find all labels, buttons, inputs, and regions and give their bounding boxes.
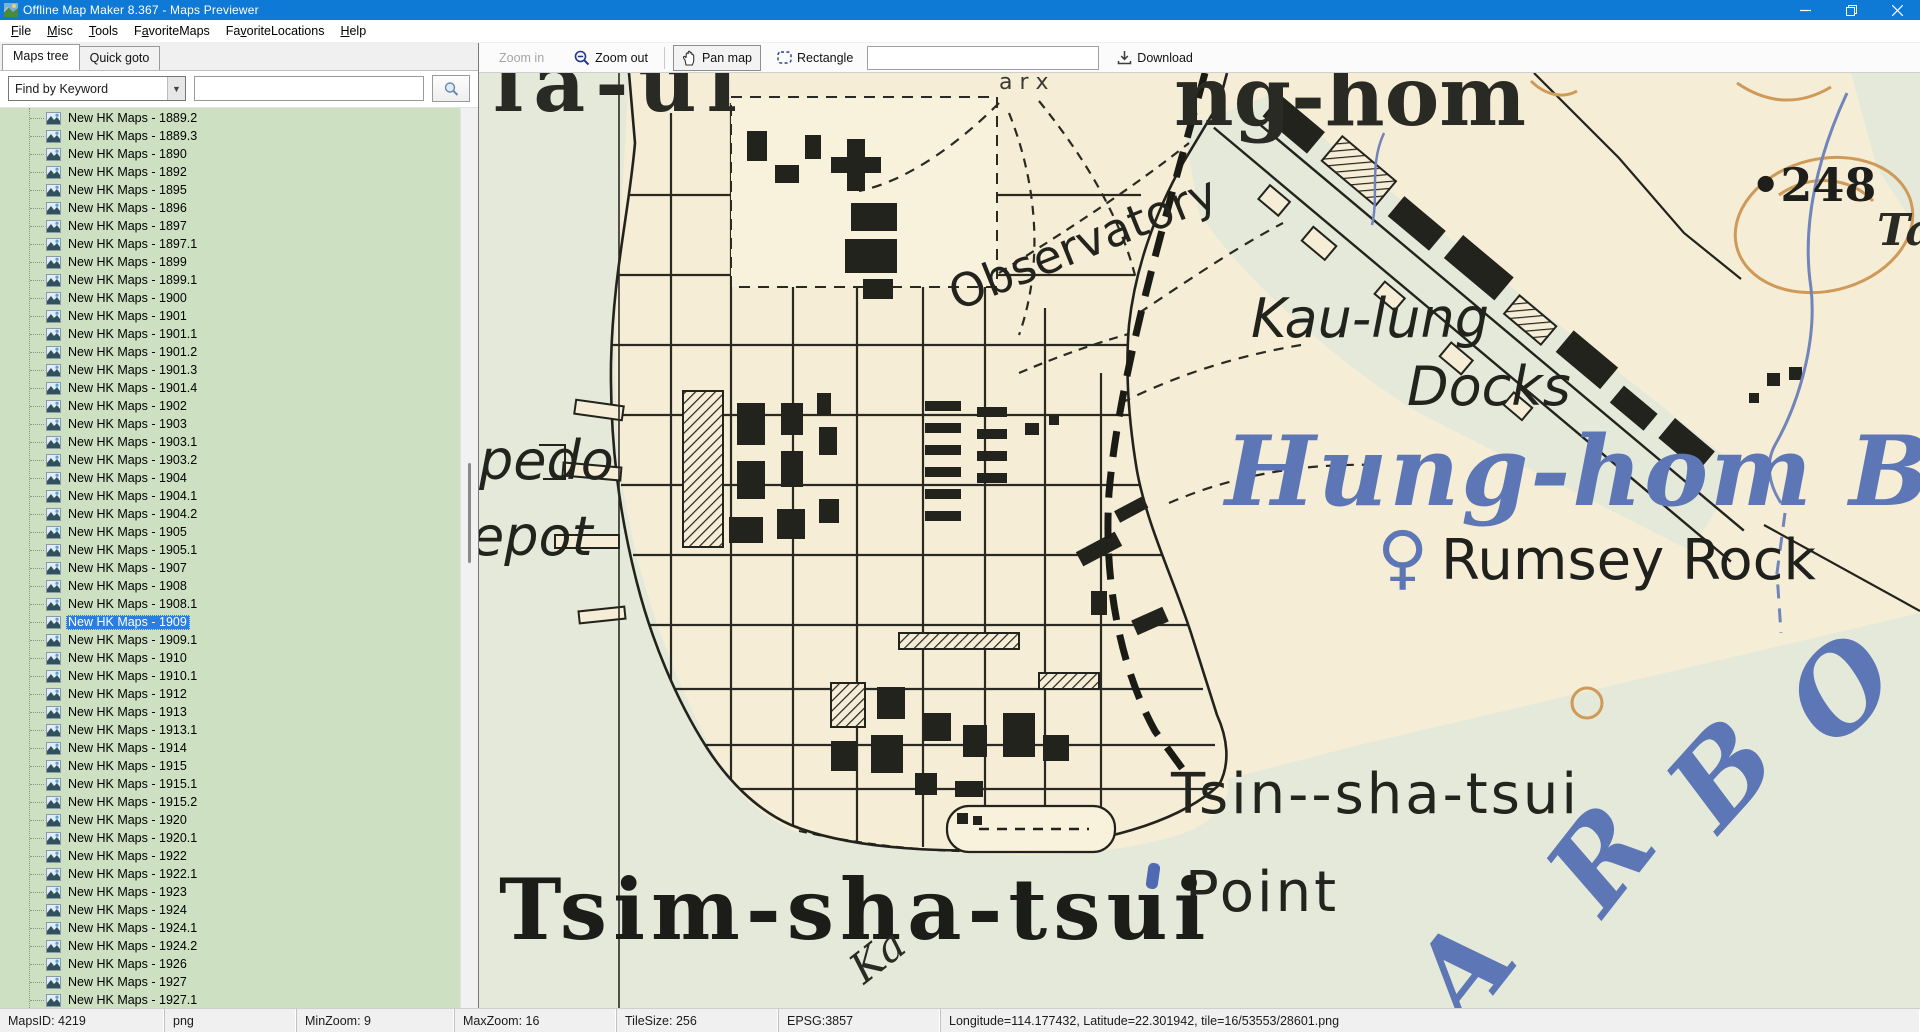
tree-connector (30, 820, 44, 821)
tree-connector (30, 982, 44, 983)
rectangle-select-icon (777, 51, 792, 64)
map-item-icon (46, 724, 61, 737)
map-item-icon (46, 436, 61, 449)
map-label-rumsey-rock: Rumsey Rock (1441, 528, 1816, 593)
map-item-icon (46, 562, 61, 575)
tree-item-label: New HK Maps - 1927 (66, 975, 190, 990)
map-item-icon (46, 400, 61, 413)
coordinate-input[interactable] (867, 46, 1099, 70)
tree-item[interactable]: New HK Maps - 1922.1 (0, 866, 460, 884)
tree-item[interactable]: New HK Maps - 1920 (0, 812, 460, 830)
map-item-icon (46, 508, 61, 521)
map-label-docks: Docks (1407, 355, 1571, 418)
tree-connector (30, 370, 44, 371)
tree-connector (30, 388, 44, 389)
map-label-sheet-title-right: ng-hom (1174, 73, 1526, 145)
tree-item-label: New HK Maps - 1915 (66, 759, 190, 774)
tree-item[interactable]: New HK Maps - 1889.2 (0, 110, 460, 128)
search-icon (443, 81, 459, 97)
tree-item-label: New HK Maps - 1912 (66, 687, 190, 702)
tree-connector (30, 856, 44, 857)
maps-tree: New HK Maps - 1889.2New HK Maps - 1889.3… (0, 108, 460, 1008)
tree-item-label: New HK Maps - 1889.2 (66, 111, 200, 126)
tree-connector (30, 424, 44, 425)
map-label-torpedo-depot-line2: epot (479, 505, 595, 568)
tree-connector (30, 694, 44, 695)
tree-connector (30, 226, 44, 227)
tree-connector (30, 838, 44, 839)
map-item-icon (46, 706, 61, 719)
rectangle-button[interactable]: Rectangle (769, 47, 861, 69)
tree-item[interactable]: New HK Maps - 1926 (0, 956, 460, 974)
map-pane: Zoom in Zoom out Pan map Rectangle (478, 43, 1920, 1008)
app-window: Offline Map Maker 8.367 - Maps Previewer… (0, 0, 1920, 1032)
map-item-icon (46, 742, 61, 755)
tab-maps-tree[interactable]: Maps tree (2, 44, 80, 70)
map-item-icon (46, 886, 61, 899)
tree-item-label: New HK Maps - 1920.1 (66, 831, 200, 846)
map-item-icon (46, 130, 61, 143)
map-label-kau-lung: Kau-lung (1251, 287, 1489, 350)
map-item-icon (46, 958, 61, 971)
tree-connector (30, 622, 44, 623)
tree-item-label: New HK Maps - 1901.4 (66, 381, 200, 396)
status-segment: MaxZoom: 16 (455, 1009, 617, 1032)
tree-item[interactable]: New HK Maps - 1901.2 (0, 344, 460, 362)
tree-item-label: New HK Maps - 1905.1 (66, 543, 200, 558)
map-item-icon (46, 868, 61, 881)
tree-scrollbar-thumb[interactable] (468, 463, 471, 563)
tree-item-label: New HK Maps - 1909 (66, 615, 190, 630)
map-label-height-248: •248 (1751, 158, 1876, 212)
map-item-icon (46, 346, 61, 359)
tree-item[interactable]: New HK Maps - 1907 (0, 560, 460, 578)
map-label-hung-hom-bay: Hung-hom Bay (1222, 415, 1920, 528)
tree-connector (30, 118, 44, 119)
tree-connector (30, 676, 44, 677)
tree-item[interactable]: New HK Maps - 1924.2 (0, 938, 460, 956)
tree-item-label: New HK Maps - 1920 (66, 813, 190, 828)
tree-guide-line (29, 108, 30, 1008)
pan-hand-icon (682, 50, 697, 66)
map-canvas[interactable]: la-ula r xng-hom•248TaObservatoryKau-lun… (479, 73, 1920, 1008)
tree-connector (30, 442, 44, 443)
tree-item-label: New HK Maps - 1923 (66, 885, 190, 900)
tree-item[interactable]: New HK Maps - 1903.1 (0, 434, 460, 452)
tree-item[interactable]: New HK Maps - 1920.1 (0, 830, 460, 848)
tree-item-label: New HK Maps - 1922 (66, 849, 190, 864)
tree-item-label: New HK Maps - 1915.2 (66, 795, 200, 810)
tree-item[interactable]: New HK Maps - 1927.1 (0, 992, 460, 1008)
tree-connector (30, 460, 44, 461)
tree-item[interactable]: New HK Maps - 1903 (0, 416, 460, 434)
tree-connector (30, 136, 44, 137)
tree-item-label: New HK Maps - 1927.1 (66, 993, 200, 1008)
tree-connector (30, 352, 44, 353)
tree-item-label: New HK Maps - 1913.1 (66, 723, 200, 738)
tree-item[interactable]: New HK Maps - 1915.1 (0, 776, 460, 794)
map-item-icon (46, 778, 61, 791)
status-bar: MapsID: 4219pngMinZoom: 9MaxZoom: 16Tile… (0, 1008, 1920, 1032)
map-item-icon (46, 310, 61, 323)
tree-connector (30, 802, 44, 803)
close-button[interactable] (1874, 0, 1920, 20)
tree-item[interactable]: New HK Maps - 1924 (0, 902, 460, 920)
map-item-icon (46, 220, 61, 233)
tree-item-label: New HK Maps - 1904.2 (66, 507, 200, 522)
tree-item[interactable]: New HK Maps - 1904 (0, 470, 460, 488)
tree-item[interactable]: New HK Maps - 1892 (0, 164, 460, 182)
tree-connector (30, 748, 44, 749)
tree-item-label: New HK Maps - 1910 (66, 651, 190, 666)
tree-item[interactable]: New HK Maps - 1910.1 (0, 668, 460, 686)
tree-item[interactable]: New HK Maps - 1927 (0, 974, 460, 992)
map-label-torpedo-depot-line1: pedo (479, 429, 614, 492)
tree-item[interactable]: New HK Maps - 1900 (0, 290, 460, 308)
tree-item-label: New HK Maps - 1903 (66, 417, 190, 432)
tree-item[interactable]: New HK Maps - 1904.2 (0, 506, 460, 524)
map-label-buoy-glyph: ♀ (1377, 516, 1428, 598)
tree-item-label: New HK Maps - 1903.1 (66, 435, 200, 450)
tree-item[interactable]: New HK Maps - 1905 (0, 524, 460, 542)
map-item-icon (46, 202, 61, 215)
rectangle-label: Rectangle (797, 51, 853, 65)
tree-item[interactable]: New HK Maps - 1909 (0, 614, 460, 632)
map-item-icon (46, 382, 61, 395)
tree-connector (30, 784, 44, 785)
zoom-in-label: Zoom in (499, 51, 544, 65)
tree-connector (30, 766, 44, 767)
zoom-out-icon (574, 50, 590, 66)
map-item-icon (46, 328, 61, 341)
tree-item-label: New HK Maps - 1909.1 (66, 633, 200, 648)
map-toolbar: Zoom in Zoom out Pan map Rectangle (479, 43, 1920, 73)
tree-connector (30, 604, 44, 605)
tree-item-label: New HK Maps - 1914 (66, 741, 190, 756)
title-bar[interactable]: Offline Map Maker 8.367 - Maps Previewer (0, 0, 1920, 20)
map-item-icon (46, 454, 61, 467)
tree-item-label: New HK Maps - 1922.1 (66, 867, 200, 882)
tree-connector (30, 262, 44, 263)
status-segment: MapsID: 4219 (0, 1009, 165, 1032)
map-label-sheet-title-left: la-ul (493, 73, 747, 130)
map-label-ta-label: Ta (1877, 205, 1920, 256)
map-item-icon (46, 526, 61, 539)
tree-connector (30, 658, 44, 659)
tree-connector (30, 712, 44, 713)
map-item-icon (46, 922, 61, 935)
tree-item-label: New HK Maps - 1908.1 (66, 597, 200, 612)
tree-item[interactable]: New HK Maps - 1922 (0, 848, 460, 866)
tree-item-label: New HK Maps - 1903.2 (66, 453, 200, 468)
tree-item[interactable]: New HK Maps - 1912 (0, 686, 460, 704)
status-segment: Longitude=114.177432, Latitude=22.301942… (941, 1009, 1920, 1032)
map-item-icon (46, 688, 61, 701)
tree-item[interactable]: New HK Maps - 1913.1 (0, 722, 460, 740)
tree-item-label: New HK Maps - 1902 (66, 399, 190, 414)
tree-item-label: New HK Maps - 1892 (66, 165, 190, 180)
status-segment: TileSize: 256 (617, 1009, 779, 1032)
map-item-icon (46, 814, 61, 827)
map-item-icon (46, 796, 61, 809)
map-label-tsin-sha-tsui-point-line1: Tsin--sha-tsui (1170, 762, 1580, 827)
tree-item-label: New HK Maps - 1901.2 (66, 345, 200, 360)
tree-item-label: New HK Maps - 1901.1 (66, 327, 200, 342)
tree-item[interactable]: New HK Maps - 1901.4 (0, 380, 460, 398)
menu-item-misc[interactable]: Misc (39, 21, 81, 41)
menu-item-help[interactable]: Help (332, 21, 374, 41)
tree-connector (30, 334, 44, 335)
window-title: Offline Map Maker 8.367 - Maps Previewer (23, 3, 259, 17)
map-item-icon (46, 634, 61, 647)
tree-connector (30, 910, 44, 911)
tree-connector (30, 568, 44, 569)
tree-connector (30, 298, 44, 299)
tree-connector (30, 514, 44, 515)
tree-item-label: New HK Maps - 1901 (66, 309, 190, 324)
tree-connector (30, 640, 44, 641)
tree-connector (30, 406, 44, 407)
tree-item[interactable]: New HK Maps - 1923 (0, 884, 460, 902)
tree-connector (30, 532, 44, 533)
toolbar-separator (664, 47, 665, 69)
map-item-icon (46, 580, 61, 593)
map-item-icon (46, 472, 61, 485)
map-item-icon (46, 256, 61, 269)
tree-item[interactable]: New HK Maps - 1890 (0, 146, 460, 164)
tree-connector (30, 1000, 44, 1001)
status-segment: EPSG:3857 (779, 1009, 941, 1032)
tree-connector (30, 190, 44, 191)
tree-item-label: New HK Maps - 1905 (66, 525, 190, 540)
tree-connector (30, 730, 44, 731)
map-item-icon (46, 850, 61, 863)
tree-connector (30, 892, 44, 893)
find-mode-value: Find by Keyword (9, 82, 167, 96)
tree-item[interactable]: New HK Maps - 1889.3 (0, 128, 460, 146)
tree-connector (30, 208, 44, 209)
zoom-out-button[interactable]: Zoom out (566, 46, 656, 70)
sidebar: Maps tree Quick goto Find by Keyword ▼ N… (0, 43, 478, 1008)
search-button[interactable] (432, 75, 470, 102)
map-item-icon (46, 418, 61, 431)
find-mode-dropdown[interactable]: Find by Keyword ▼ (8, 76, 186, 101)
map-item-icon (46, 184, 61, 197)
map-item-icon (46, 292, 61, 305)
map-item-icon (46, 832, 61, 845)
tree-item-label: New HK Maps - 1900 (66, 291, 190, 306)
tree-connector (30, 874, 44, 875)
tree-item-label: New HK Maps - 1897 (66, 219, 190, 234)
menu-item-favoritelocations[interactable]: FavoriteLocations (218, 21, 333, 41)
menu-bar: FileMiscToolsFavoriteMapsFavoriteLocatio… (0, 20, 1920, 43)
zoom-out-label: Zoom out (595, 51, 648, 65)
tree-item[interactable]: New HK Maps - 1910 (0, 650, 460, 668)
tree-item-label: New HK Maps - 1924 (66, 903, 190, 918)
download-button[interactable]: Download (1109, 46, 1201, 69)
tree-item-label: New HK Maps - 1910.1 (66, 669, 200, 684)
tree-item[interactable]: New HK Maps - 1908 (0, 578, 460, 596)
tree-item[interactable]: New HK Maps - 1915 (0, 758, 460, 776)
map-item-icon (46, 166, 61, 179)
map-item-icon (46, 364, 61, 377)
tree-item-label: New HK Maps - 1908 (66, 579, 190, 594)
chevron-down-icon[interactable]: ▼ (167, 77, 185, 100)
map-item-icon (46, 994, 61, 1007)
search-row: Find by Keyword ▼ (0, 71, 478, 108)
tree-item-label: New HK Maps - 1904 (66, 471, 190, 486)
map-item-icon (46, 976, 61, 989)
tree-connector (30, 586, 44, 587)
tree-item-label: New HK Maps - 1924.2 (66, 939, 200, 954)
tree-item-label: New HK Maps - 1889.3 (66, 129, 200, 144)
tree-connector (30, 946, 44, 947)
sidebar-tabstrip: Maps tree Quick goto (0, 43, 478, 71)
zoom-in-button[interactable]: Zoom in (491, 47, 552, 69)
tree-connector (30, 316, 44, 317)
tree-item-label: New HK Maps - 1895 (66, 183, 190, 198)
tree-item[interactable]: New HK Maps - 1909.1 (0, 632, 460, 650)
tree-item-label: New HK Maps - 1907 (66, 561, 190, 576)
tree-item[interactable]: New HK Maps - 1901.3 (0, 362, 460, 380)
map-item-icon (46, 652, 61, 665)
menu-item-tools[interactable]: Tools (81, 21, 126, 41)
tree-item-label: New HK Maps - 1897.1 (66, 237, 200, 252)
tree-item-label: New HK Maps - 1890 (66, 147, 190, 162)
tree-connector (30, 964, 44, 965)
map-item-icon (46, 238, 61, 251)
tree-item[interactable]: New HK Maps - 1914 (0, 740, 460, 758)
tree-item[interactable]: New HK Maps - 1905.1 (0, 542, 460, 560)
menu-item-favoritemaps[interactable]: FavoriteMaps (126, 21, 218, 41)
map-item-icon (46, 670, 61, 683)
menu-item-file[interactable]: File (3, 21, 39, 41)
map-item-icon (46, 148, 61, 161)
tree-item-label: New HK Maps - 1913 (66, 705, 190, 720)
tree-item-label: New HK Maps - 1924.1 (66, 921, 200, 936)
tree-item[interactable]: New HK Maps - 1902 (0, 398, 460, 416)
tree-item-label: New HK Maps - 1901.3 (66, 363, 200, 378)
download-label: Download (1137, 51, 1193, 65)
tree-item-label: New HK Maps - 1899 (66, 255, 190, 270)
pan-map-button[interactable]: Pan map (673, 45, 761, 71)
tree-item-label: New HK Maps - 1904.1 (66, 489, 200, 504)
tree-connector (30, 928, 44, 929)
tree-item[interactable]: New HK Maps - 1897.1 (0, 236, 460, 254)
tree-item[interactable]: New HK Maps - 1901.1 (0, 326, 460, 344)
tab-quick-goto[interactable]: Quick goto (79, 46, 161, 70)
tree-item[interactable]: New HK Maps - 1913 (0, 704, 460, 722)
restore-button[interactable] (1828, 0, 1874, 20)
map-item-icon (46, 760, 61, 773)
tree-item[interactable]: New HK Maps - 1899 (0, 254, 460, 272)
map-item-icon (46, 544, 61, 557)
historic-map-image: la-ula r xng-hom•248TaObservatoryKau-lun… (479, 73, 1920, 1008)
status-segment: MinZoom: 9 (297, 1009, 455, 1032)
tree-item-label: New HK Maps - 1899.1 (66, 273, 200, 288)
minimize-button[interactable] (1782, 0, 1828, 20)
status-segment: png (165, 1009, 297, 1032)
tree-item[interactable]: New HK Maps - 1895 (0, 182, 460, 200)
tree-item-label: New HK Maps - 1915.1 (66, 777, 200, 792)
map-label-small-top-text: a r x (999, 73, 1049, 95)
tree-item[interactable]: New HK Maps - 1903.2 (0, 452, 460, 470)
tree-connector (30, 244, 44, 245)
map-item-icon (46, 274, 61, 287)
tree-connector (30, 172, 44, 173)
tree-item-label: New HK Maps - 1926 (66, 957, 190, 972)
tree-item[interactable]: New HK Maps - 1908.1 (0, 596, 460, 614)
tree-item[interactable]: New HK Maps - 1897 (0, 218, 460, 236)
tree-item[interactable]: New HK Maps - 1915.2 (0, 794, 460, 812)
app-icon (4, 3, 18, 17)
tree-connector (30, 280, 44, 281)
map-item-icon (46, 598, 61, 611)
map-item-icon (46, 112, 61, 125)
map-item-icon (46, 490, 61, 503)
download-icon (1117, 50, 1132, 65)
pan-map-label: Pan map (702, 51, 752, 65)
tree-item[interactable]: New HK Maps - 1899.1 (0, 272, 460, 290)
tree-connector (30, 496, 44, 497)
search-input[interactable] (194, 76, 424, 101)
tree-connector (30, 154, 44, 155)
tree-item[interactable]: New HK Maps - 1904.1 (0, 488, 460, 506)
tree-item-label: New HK Maps - 1896 (66, 201, 190, 216)
map-item-icon (46, 616, 61, 629)
tree-item[interactable]: New HK Maps - 1924.1 (0, 920, 460, 938)
map-item-icon (46, 904, 61, 917)
tree-connector (30, 550, 44, 551)
tree-item[interactable]: New HK Maps - 1896 (0, 200, 460, 218)
tree-connector (30, 478, 44, 479)
tree-scrollbar[interactable] (460, 108, 478, 1008)
map-item-icon (46, 940, 61, 953)
tree-item[interactable]: New HK Maps - 1901 (0, 308, 460, 326)
